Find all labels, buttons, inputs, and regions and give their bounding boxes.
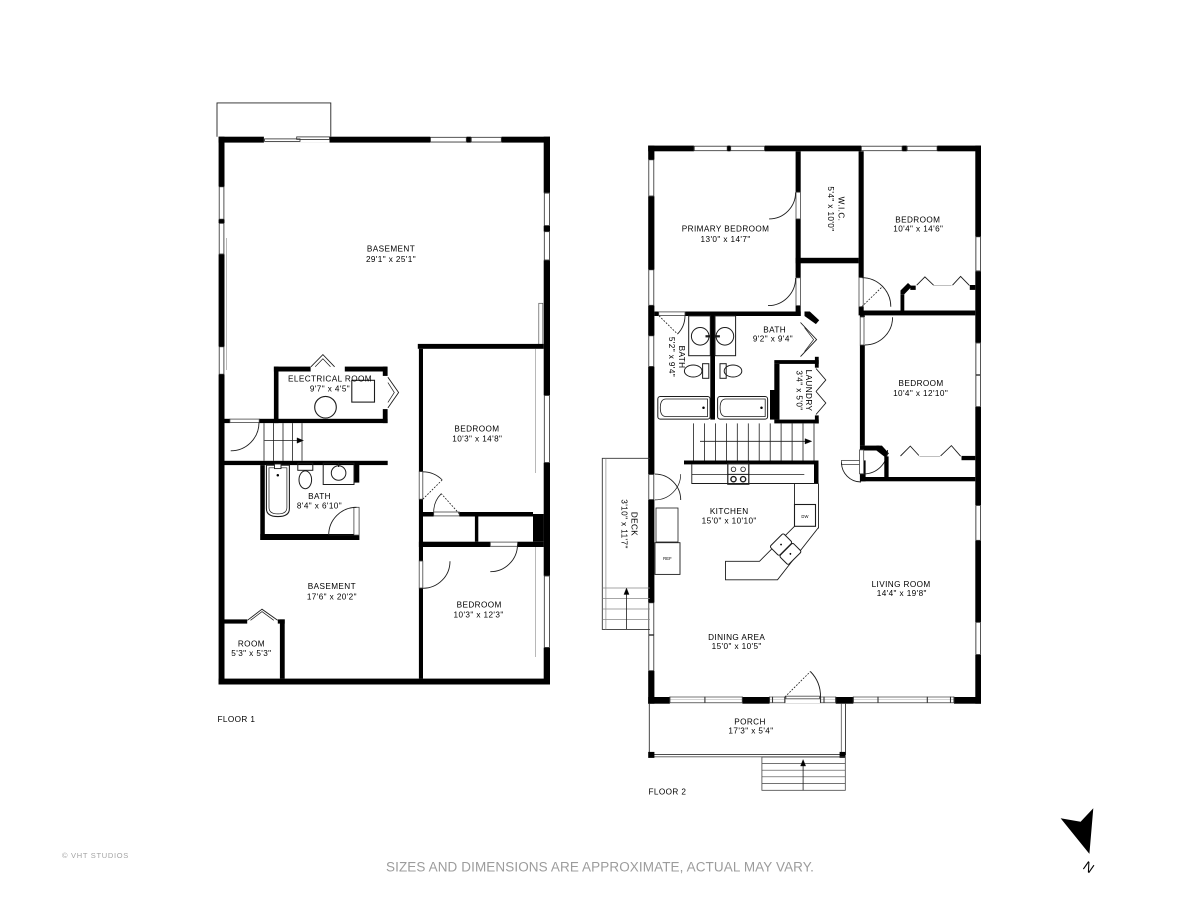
svg-text:17'6" x 20'2": 17'6" x 20'2" bbox=[307, 592, 357, 601]
svg-text:BEDROOM: BEDROOM bbox=[454, 425, 499, 434]
svg-text:© VHT STUDIOS: © VHT STUDIOS bbox=[62, 851, 129, 860]
svg-text:BATH: BATH bbox=[763, 325, 786, 334]
svg-text:5'4" x 10'0": 5'4" x 10'0" bbox=[826, 186, 835, 231]
svg-text:9'7" x 4'5": 9'7" x 4'5" bbox=[310, 385, 350, 394]
svg-text:5'2" x 9'4": 5'2" x 9'4" bbox=[667, 337, 676, 377]
svg-text:3'10" x 11'7": 3'10" x 11'7" bbox=[620, 499, 629, 549]
svg-text:10'4" x 12'10": 10'4" x 12'10" bbox=[893, 389, 948, 398]
svg-text:PRIMARY BEDROOM: PRIMARY BEDROOM bbox=[682, 224, 770, 233]
svg-text:15'0" x 10'5": 15'0" x 10'5" bbox=[712, 642, 762, 651]
svg-text:BATH: BATH bbox=[677, 346, 686, 369]
svg-text:FLOOR 2: FLOOR 2 bbox=[649, 788, 687, 797]
svg-text:BEDROOM: BEDROOM bbox=[899, 379, 944, 388]
svg-text:LAUNDRY: LAUNDRY bbox=[804, 370, 813, 412]
svg-text:BATH: BATH bbox=[308, 492, 331, 501]
svg-text:10'3" x 12'3": 10'3" x 12'3" bbox=[454, 611, 504, 620]
svg-text:FLOOR 1: FLOOR 1 bbox=[218, 715, 256, 724]
svg-text:BEDROOM: BEDROOM bbox=[457, 601, 502, 610]
svg-text:DW: DW bbox=[801, 514, 808, 519]
svg-text:13'0" x 14'7": 13'0" x 14'7" bbox=[701, 235, 751, 244]
svg-text:3'4" x 5'0": 3'4" x 5'0" bbox=[795, 370, 804, 410]
svg-text:SIZES AND DIMENSIONS ARE APPRO: SIZES AND DIMENSIONS ARE APPROXIMATE, AC… bbox=[386, 860, 814, 875]
svg-text:15'0" x 10'10": 15'0" x 10'10" bbox=[702, 516, 757, 525]
svg-text:29'1" x 25'1": 29'1" x 25'1" bbox=[366, 255, 416, 264]
svg-text:17'3" x 5'4": 17'3" x 5'4" bbox=[728, 727, 773, 736]
svg-text:14'4" x 19'8": 14'4" x 19'8" bbox=[877, 589, 927, 598]
svg-text:DINING AREA: DINING AREA bbox=[708, 633, 765, 642]
svg-text:ROOM: ROOM bbox=[238, 640, 265, 649]
svg-text:9'2" x 9'4": 9'2" x 9'4" bbox=[753, 335, 793, 344]
svg-text:BEDROOM: BEDROOM bbox=[895, 216, 940, 225]
svg-text:REF: REF bbox=[663, 556, 672, 561]
svg-text:ELECTRICAL ROOM: ELECTRICAL ROOM bbox=[288, 374, 372, 383]
svg-text:BASEMENT: BASEMENT bbox=[308, 582, 356, 591]
svg-text:DECK: DECK bbox=[630, 512, 639, 536]
svg-text:BASEMENT: BASEMENT bbox=[367, 244, 415, 253]
svg-text:PORCH: PORCH bbox=[734, 717, 766, 726]
svg-text:10'3" x 14'8": 10'3" x 14'8" bbox=[452, 435, 502, 444]
svg-text:LIVING ROOM: LIVING ROOM bbox=[872, 580, 931, 589]
svg-text:KITCHEN: KITCHEN bbox=[710, 507, 749, 516]
svg-text:W.I.C.: W.I.C. bbox=[837, 197, 846, 222]
svg-text:5'3" x 5'3": 5'3" x 5'3" bbox=[231, 649, 271, 658]
svg-text:8'4" x 6'10": 8'4" x 6'10" bbox=[297, 502, 342, 511]
svg-text:10'4" x 14'6": 10'4" x 14'6" bbox=[893, 224, 943, 233]
